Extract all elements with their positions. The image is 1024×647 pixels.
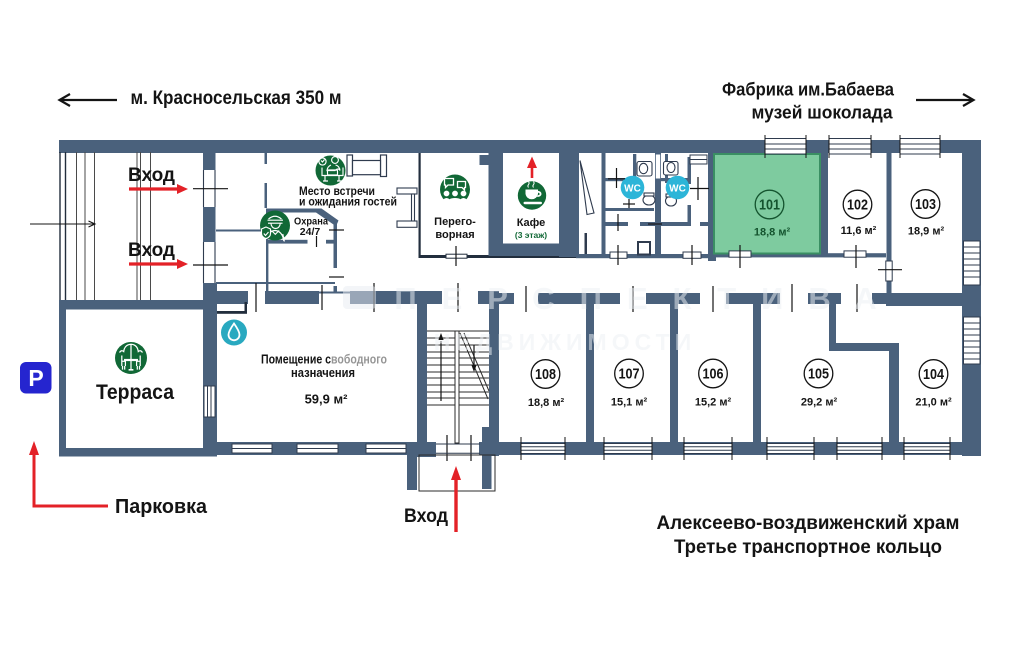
svg-text:(3 этаж): (3 этаж)	[515, 230, 547, 240]
svg-text:Третье транспортное кольцо: Третье транспортное кольцо	[674, 536, 942, 558]
svg-text:102: 102	[847, 197, 868, 214]
svg-text:18,8 м²: 18,8 м²	[754, 227, 791, 239]
svg-text:21,0 м²: 21,0 м²	[915, 397, 952, 409]
svg-text:Парковка: Парковка	[115, 496, 208, 518]
svg-text:106: 106	[703, 366, 724, 383]
svg-text:107: 107	[619, 366, 640, 383]
svg-text:18,9 м²: 18,9 м²	[908, 226, 945, 238]
svg-text:15,1 м²: 15,1 м²	[611, 397, 648, 409]
svg-text:Вход: Вход	[128, 240, 175, 261]
svg-text:НЕДВИЖИМОСТИ: НЕДВИЖИМОСТИ	[434, 329, 696, 355]
svg-text:и ожидания гостей: и ожидания гостей	[299, 197, 397, 209]
svg-text:Вход: Вход	[128, 165, 175, 186]
svg-text:Алексеево-воздвиженский храм: Алексеево-воздвиженский храм	[657, 512, 960, 534]
svg-text:Фабрика им.Бабаева: Фабрика им.Бабаева	[722, 80, 895, 100]
svg-text:105: 105	[808, 366, 829, 383]
svg-text:104: 104	[923, 366, 945, 383]
svg-text:Вход: Вход	[404, 506, 448, 527]
svg-text:24/7: 24/7	[300, 226, 321, 238]
svg-text:108: 108	[535, 366, 556, 383]
svg-text:15,2 м²: 15,2 м²	[695, 397, 732, 409]
svg-text:P: P	[28, 365, 43, 391]
svg-text:11,6 м²: 11,6 м²	[841, 225, 877, 237]
svg-text:музей шоколада: музей шоколада	[752, 103, 894, 123]
svg-text:ПЕРСПЕКТИВА: ПЕРСПЕКТИВА	[394, 281, 901, 316]
svg-text:м. Красносельская 350 м: м. Красносельская 350 м	[131, 88, 342, 109]
svg-text:Терраса: Терраса	[96, 381, 174, 404]
svg-text:29,2 м²: 29,2 м²	[801, 397, 838, 409]
svg-text:ворная: ворная	[435, 229, 474, 241]
svg-text:103: 103	[915, 196, 936, 213]
svg-text:18,8 м²: 18,8 м²	[528, 397, 565, 409]
svg-text:59,9 м²: 59,9 м²	[305, 392, 349, 407]
svg-text:Кафе: Кафе	[517, 217, 546, 229]
svg-text:WC: WC	[669, 184, 686, 195]
svg-text:назначения: назначения	[291, 365, 355, 380]
svg-text:WC: WC	[624, 184, 641, 195]
svg-text:101: 101	[759, 197, 780, 214]
svg-text:Перего-: Перего-	[434, 216, 476, 228]
